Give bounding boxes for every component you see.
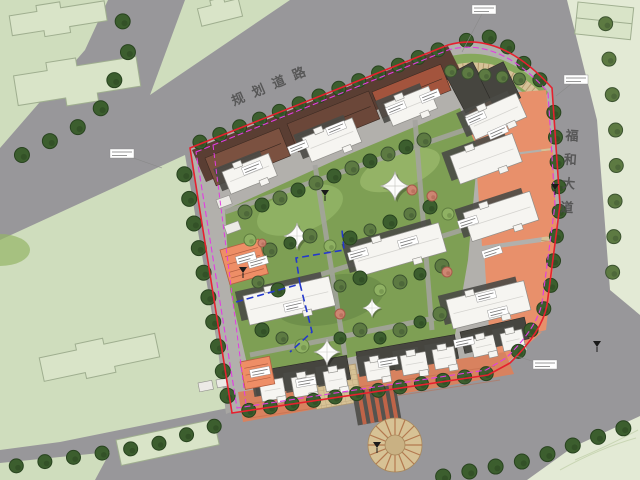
tree-crown-shade	[447, 213, 452, 218]
tree-crown-shade	[122, 20, 128, 26]
tree-crown-shade	[411, 189, 415, 193]
tree-crown-shade	[257, 281, 262, 286]
tree-crown-shade	[339, 285, 344, 290]
annotation-box	[110, 149, 134, 158]
tree-crown-shade	[193, 222, 199, 228]
tree-crown-shade	[439, 313, 445, 319]
building-wing	[449, 364, 459, 371]
building-wing	[296, 371, 306, 378]
tree-crown-shade	[369, 229, 374, 234]
tree-crown-shade	[614, 200, 620, 206]
tree-crown-shade	[213, 425, 219, 431]
tree-crown-shade	[101, 452, 107, 458]
tree-crown-shade	[494, 465, 500, 471]
tree-crown-shade	[501, 76, 506, 81]
tree-crown-shade	[207, 296, 213, 302]
site-plan-image: 规划道路 福和大道	[0, 0, 640, 480]
site-plan-svg	[0, 0, 640, 480]
tree-crown-shade	[359, 277, 365, 283]
tree-crown-shade	[279, 197, 285, 203]
tree-crown-shade	[379, 337, 384, 342]
tree-crown-shade	[405, 146, 411, 152]
tree-crown-shade	[281, 337, 286, 342]
tree-crown-shade	[429, 206, 435, 212]
tree-crown-shade	[186, 434, 192, 440]
tree-crown-shade	[202, 272, 208, 278]
tree-crown-shade	[399, 329, 405, 335]
tree-crown-shade	[612, 271, 618, 277]
tree-crown-shade	[387, 153, 393, 159]
building-wing	[419, 369, 429, 376]
tree-crown-shade	[44, 461, 50, 467]
tree-crown-shade	[546, 453, 552, 459]
tree-crown-shade	[339, 337, 344, 342]
tree-crown-shade	[269, 249, 275, 255]
tree-crown-shade	[77, 126, 83, 132]
tree-crown-shade	[113, 79, 119, 85]
tree-crown-shade	[507, 46, 513, 52]
annotation-box	[564, 75, 588, 84]
tree-crown-shade	[21, 154, 27, 160]
tree-crown-shade	[468, 470, 474, 476]
tree-crown-shade	[615, 164, 621, 170]
annotation-box	[533, 360, 557, 369]
tree-crown-shade	[339, 313, 343, 317]
tree-crown-shade	[467, 72, 472, 77]
tree-crown-shade	[351, 167, 357, 173]
tree-crown-shade	[409, 213, 414, 218]
tree-crown-shade	[72, 456, 78, 462]
tree-crown-shade	[333, 175, 339, 181]
tree-crown-shade	[249, 239, 254, 244]
tree-crown-shade	[622, 427, 628, 433]
tree-crown-shade	[261, 204, 267, 210]
tree-crown-shade	[49, 140, 55, 146]
tree-crown-shade	[297, 189, 303, 195]
annotation-box	[472, 5, 496, 14]
tree-crown-shade	[261, 242, 264, 245]
tree-crown-shade	[315, 182, 321, 188]
tree-crown-shade	[605, 23, 611, 29]
tree-crown-shade	[183, 173, 189, 179]
building-wing	[406, 349, 416, 356]
tree-crown-shade	[419, 321, 424, 326]
tree-crown-shade	[484, 74, 489, 79]
tree-crown-shade	[158, 442, 164, 448]
tree-crown-shade	[127, 51, 133, 57]
tree-crown-shade	[130, 448, 136, 454]
tree-crown-shade	[611, 94, 617, 100]
tree-crown-shade	[399, 281, 405, 287]
tree-crown-shade	[349, 237, 355, 243]
tree-crown-shade	[309, 235, 315, 241]
tree-crown-shade	[244, 211, 250, 217]
building-wing	[328, 366, 338, 373]
tree-crown-shade	[431, 195, 435, 199]
tree-crown-shade	[359, 329, 365, 335]
building-wing	[382, 376, 392, 383]
tree-crown-shade	[198, 247, 204, 253]
tree-crown-shade	[301, 345, 307, 351]
tree-crown-shade	[369, 160, 375, 166]
tree-crown-shade	[379, 289, 384, 294]
tree-crown-shade	[450, 70, 455, 75]
tree-crown-shade	[261, 329, 267, 335]
tree-crown-shade	[100, 107, 106, 113]
tree-crown-shade	[389, 221, 395, 227]
tree-crown-shade	[550, 284, 556, 290]
tree-crown-shade	[608, 58, 614, 64]
tree-crown-shade	[419, 273, 424, 278]
tree-crown-shade	[446, 271, 450, 275]
tree-crown-shade	[329, 245, 334, 250]
tree-crown-shade	[15, 465, 21, 471]
tree-crown-shade	[597, 436, 603, 442]
tree-crown-shade	[615, 129, 621, 135]
tree-crown-shade	[289, 242, 294, 247]
tree-crown-shade	[488, 36, 494, 42]
tree-crown-shade	[521, 460, 527, 466]
tree-crown-shade	[423, 139, 429, 145]
tree-crown-shade	[572, 444, 578, 450]
tree-crown-shade	[519, 78, 524, 83]
tree-crown-shade	[188, 198, 194, 204]
tree-crown-shade	[613, 236, 619, 242]
building-wing	[437, 344, 447, 351]
